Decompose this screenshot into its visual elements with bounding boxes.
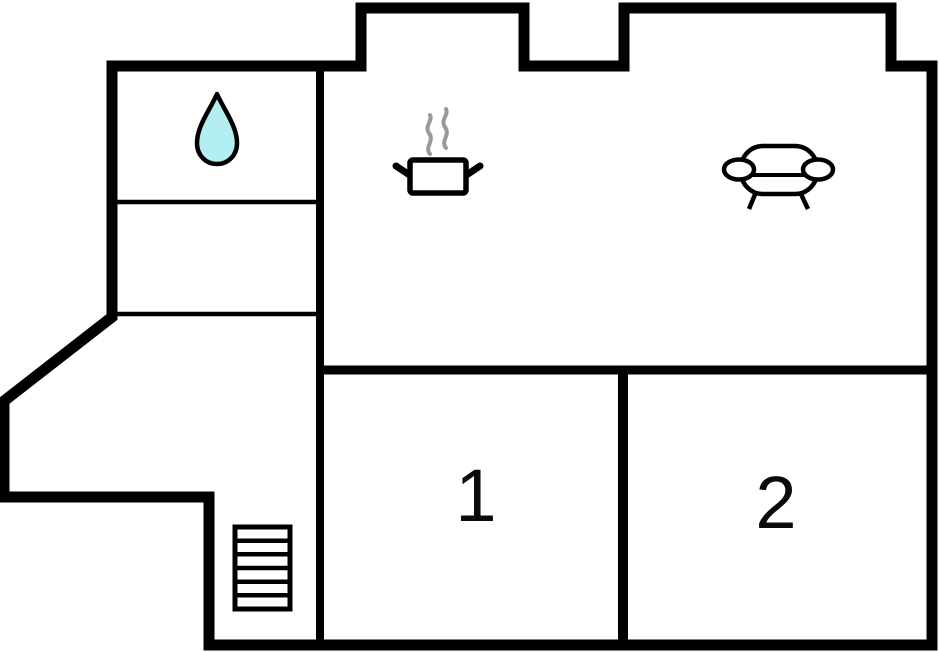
steam-line-right: [443, 109, 446, 148]
sofa-armrest-right: [803, 160, 833, 180]
floor-plan-drawing: [0, 0, 940, 652]
exterior-walls: [4, 8, 932, 645]
floor-plan: 1 2: [0, 0, 940, 652]
bedroom-1-label: 1: [426, 458, 526, 534]
sofa-armrest-left: [724, 160, 754, 180]
steam-line-left: [427, 115, 430, 154]
pot-body: [410, 160, 466, 193]
stairs-icon: [235, 527, 290, 609]
bedroom-2-label: 2: [726, 465, 826, 541]
